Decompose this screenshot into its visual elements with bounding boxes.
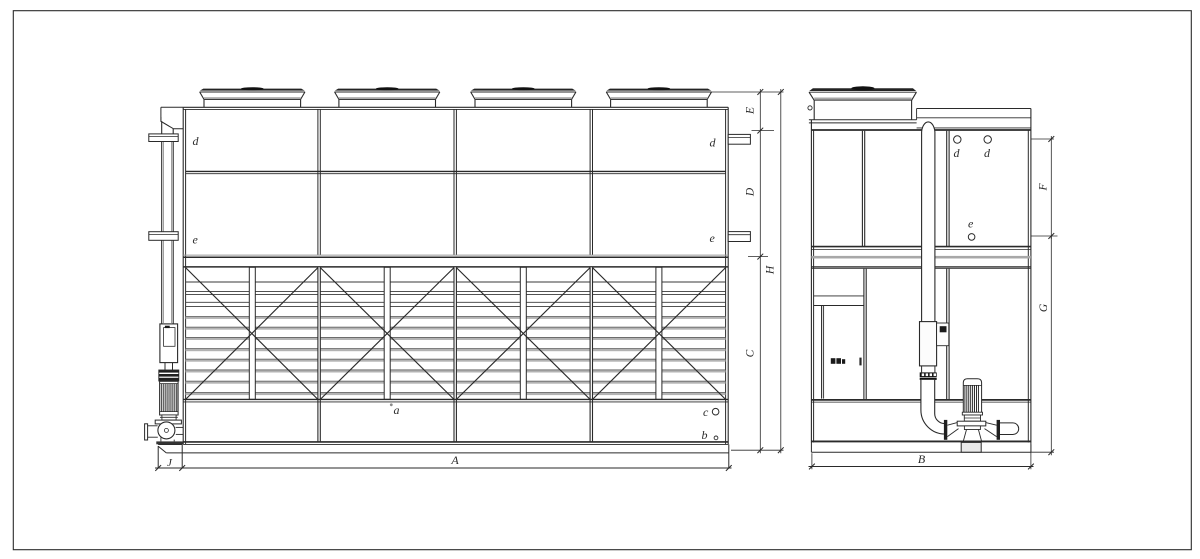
svg-text:a: a [394, 403, 400, 417]
svg-text:D: D [745, 187, 757, 197]
svg-text:F: F [1038, 183, 1050, 192]
svg-text:E: E [745, 107, 757, 115]
svg-text:d: d [954, 146, 961, 160]
svg-text:d: d [984, 146, 991, 160]
svg-text:e: e [710, 231, 716, 245]
svg-text:e: e [193, 233, 199, 247]
svg-text:B: B [918, 452, 926, 466]
svg-text:A: A [450, 453, 459, 467]
svg-text:C: C [745, 349, 757, 357]
svg-text:H: H [765, 265, 777, 275]
svg-text:c: c [703, 405, 709, 419]
svg-text:b: b [702, 428, 708, 442]
svg-text:e: e [968, 217, 974, 231]
svg-text:G: G [1038, 303, 1050, 312]
svg-text:d: d [193, 134, 200, 148]
svg-text:d: d [710, 135, 717, 149]
